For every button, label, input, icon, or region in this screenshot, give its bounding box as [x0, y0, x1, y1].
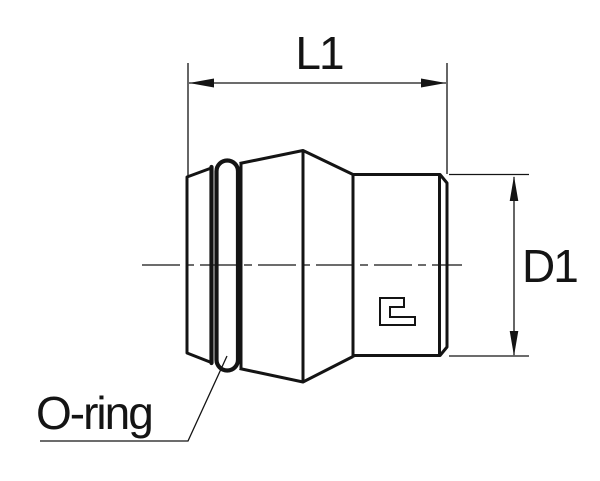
dimension-l1: L1 [188, 27, 447, 176]
arrowhead-down-icon [510, 331, 519, 356]
oring-label: O-ring [36, 387, 152, 439]
cone-bottom-edges [240, 357, 354, 383]
dim-l1-label: L1 [295, 27, 343, 79]
technical-drawing-canvas: L1 D1 [0, 0, 600, 481]
part-outline [187, 151, 447, 383]
arrowhead-right-icon [421, 79, 446, 88]
brand-mark-icon [380, 298, 415, 325]
fitting-cap-drawing: L1 D1 [0, 0, 600, 481]
dim-d1-label: D1 [522, 240, 577, 292]
oring-callout: O-ring [36, 356, 227, 441]
arrowhead-left-icon [189, 79, 214, 88]
dimension-d1: D1 [449, 175, 577, 357]
cone-top-edges [240, 151, 354, 175]
arrowhead-up-icon [510, 176, 519, 201]
